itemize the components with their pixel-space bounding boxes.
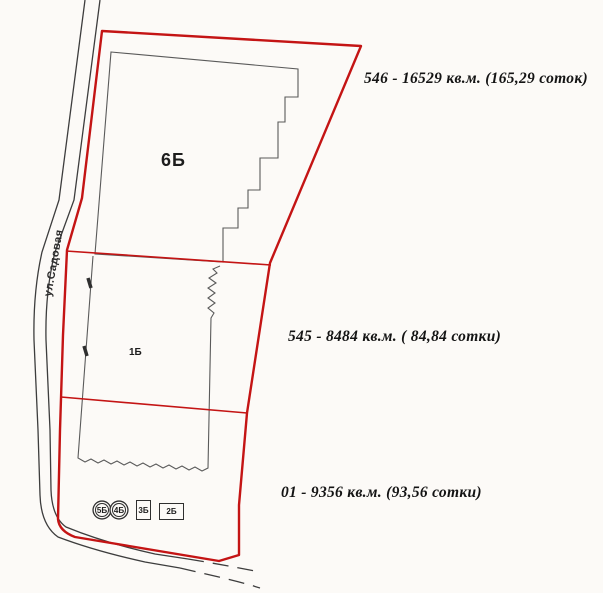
- divider-546-545: [66, 251, 271, 265]
- building-1b-outline: [78, 256, 220, 471]
- area-label-545: 545 - 8484 кв.м. ( 84,84 сотки): [288, 328, 501, 346]
- building-6b-outline: [95, 52, 298, 262]
- divider-545-01: [61, 397, 247, 413]
- plan-drawing: [0, 0, 603, 593]
- survey-tick-upper: [88, 278, 91, 288]
- road-edge-outer-continuation: [180, 568, 260, 588]
- area-label-546: 546 - 16529 кв.м. (165,29 соток): [364, 70, 588, 88]
- building-tag-2b: 2Б: [159, 503, 184, 520]
- cadastral-plan: ул.Садовая 6Б 1Б 5Б 4Б 3Б 2Б 546 - 16529…: [0, 0, 603, 593]
- building-tag-4b: 4Б: [112, 503, 126, 517]
- building-label-1b: 1Б: [129, 347, 142, 358]
- area-label-01: 01 - 9356 кв.м. (93,56 сотки): [281, 484, 482, 502]
- road-edge-inner: [46, 0, 188, 559]
- building-label-6b: 6Б: [161, 150, 186, 171]
- parcel-boundary: [58, 31, 361, 561]
- building-tag-3b: 3Б: [136, 500, 151, 520]
- building-tag-5b: 5Б: [95, 503, 109, 517]
